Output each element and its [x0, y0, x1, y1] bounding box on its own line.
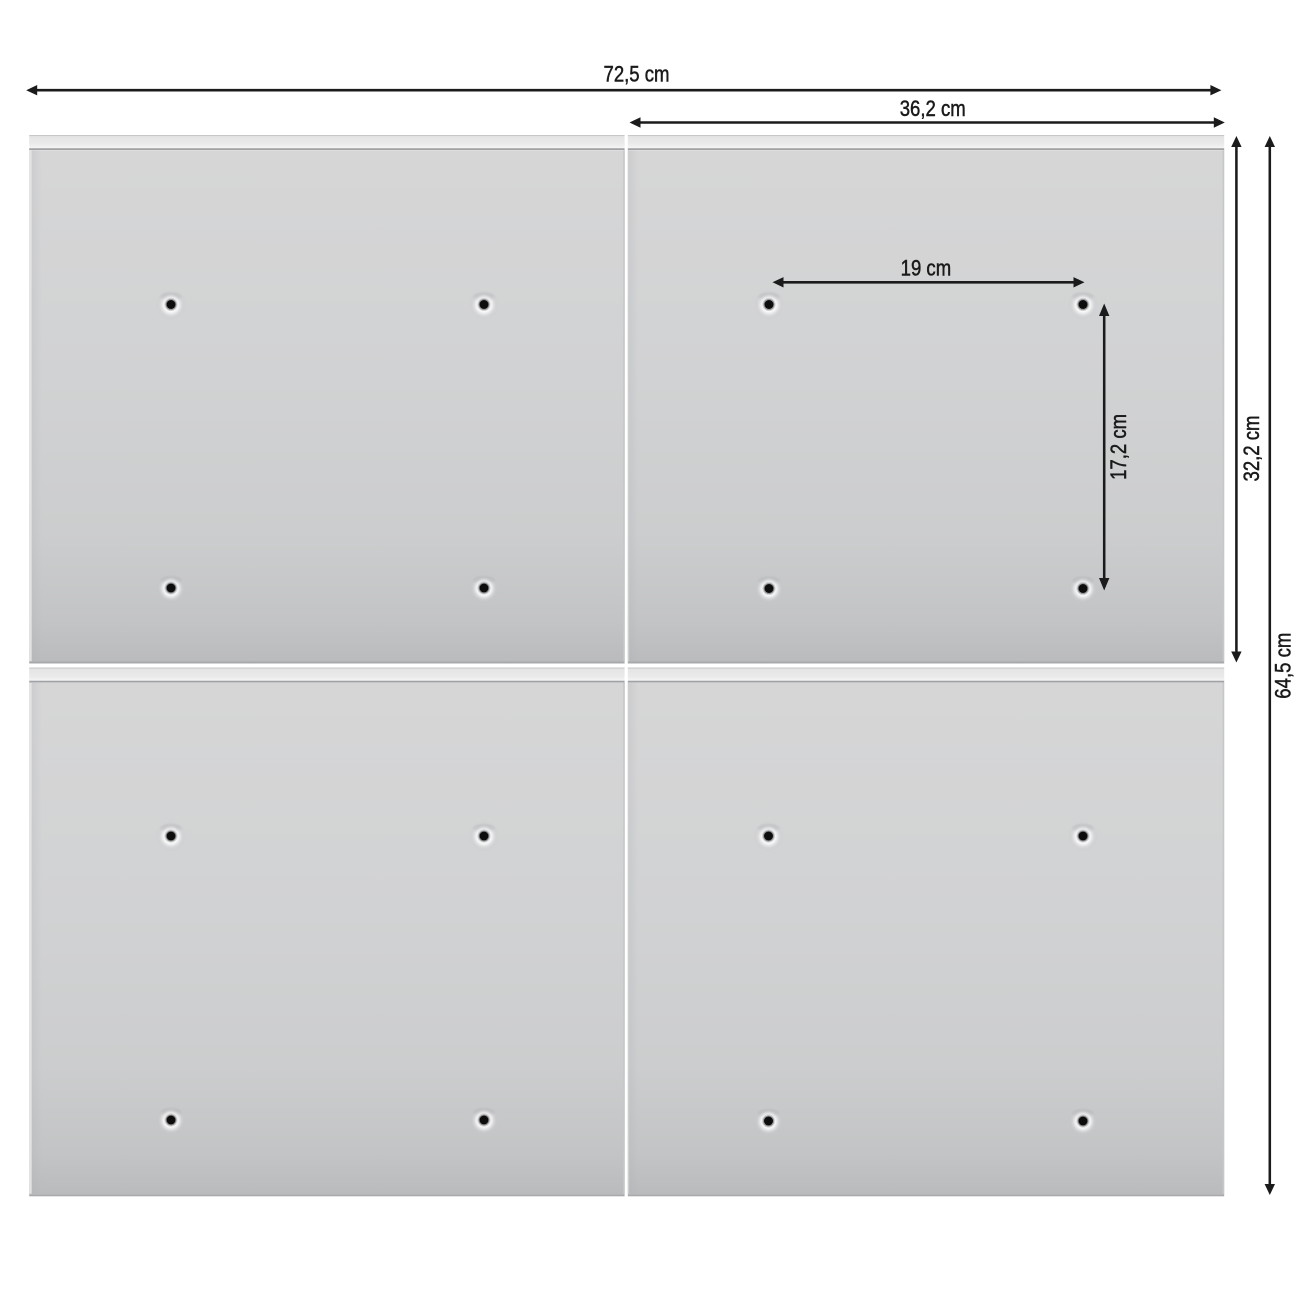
svg-text:32,2 cm: 32,2 cm	[1239, 416, 1264, 482]
svg-text:19 cm: 19 cm	[901, 256, 952, 281]
svg-text:72,5 cm: 72,5 cm	[604, 62, 670, 87]
svg-text:64,5 cm: 64,5 cm	[1271, 633, 1296, 699]
svg-text:36,2 cm: 36,2 cm	[900, 97, 966, 122]
svg-text:17,2 cm: 17,2 cm	[1106, 414, 1131, 480]
